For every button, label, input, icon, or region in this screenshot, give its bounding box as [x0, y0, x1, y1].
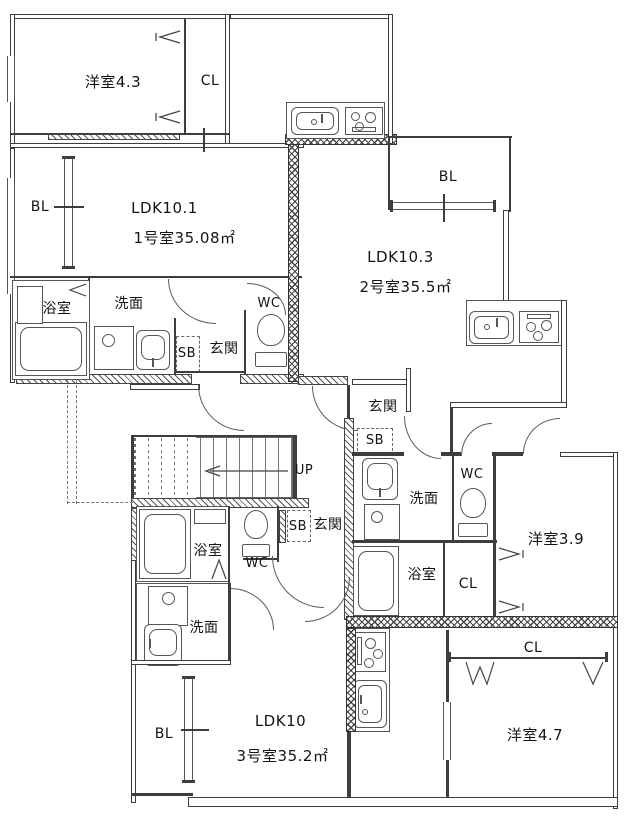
railing-cap [62, 156, 75, 159]
room-label-wc: WC [254, 296, 284, 312]
balcony-outline [509, 136, 511, 212]
room-label-closet: CL [454, 576, 482, 594]
room-label-entrance: 玄関 [196, 341, 252, 359]
bathtub-icon [15, 322, 87, 376]
room-label-western-3-9: 洋室3.9 [515, 530, 597, 549]
wall [131, 660, 231, 665]
wall [130, 384, 200, 390]
kitchen-sink-icon [291, 107, 339, 135]
hanger-pipe-icon [464, 660, 496, 686]
room-label-balcony: BL [148, 726, 180, 744]
room-label-bath: 浴室 [29, 301, 85, 319]
room-label-washroom: 洗面 [398, 491, 450, 509]
room-label-closet: CL [192, 73, 228, 91]
room-label-entrance: 玄関 [355, 399, 411, 417]
grid-tick [203, 128, 205, 152]
gas-stove-icon [345, 107, 383, 135]
wall [450, 408, 453, 456]
room-label-balcony: BL [25, 199, 55, 217]
wall [388, 14, 393, 144]
wall [10, 143, 304, 148]
roof-outline-dashed [67, 502, 133, 504]
stairs-up-label: UP [287, 463, 321, 479]
window-track [48, 134, 180, 140]
unit1-ldk-label: LDK10.1 [112, 199, 217, 218]
wall [352, 379, 408, 385]
unit3-room-info: 3号室35.2㎡ [210, 747, 355, 766]
wall [441, 452, 461, 456]
hatched-wall [288, 142, 299, 382]
window [7, 56, 15, 102]
bath-counter [194, 509, 226, 524]
door-arc [404, 416, 441, 459]
wall [184, 19, 186, 134]
unit1-room-info: 1号室35.08㎡ [112, 229, 257, 248]
room-label-western-4-3: 洋室4.3 [58, 73, 168, 92]
room-label-bath: 浴室 [396, 567, 448, 585]
room-label-bath: 浴室 [180, 543, 236, 561]
window [443, 702, 451, 760]
room-label-washroom: 洗面 [176, 620, 232, 638]
sliding-door-arrow-icon [62, 282, 88, 298]
railing-cap [182, 780, 195, 783]
toilet-icon [457, 486, 489, 538]
room-label-balcony: BL [433, 169, 463, 187]
sliding-door-arrow-icon [150, 28, 182, 46]
railing-cap [62, 266, 75, 269]
hatched-wall [346, 616, 618, 628]
gas-stove-icon [354, 632, 386, 672]
bathtub-icon [353, 546, 399, 616]
wall [452, 456, 454, 540]
hatched-wall [298, 376, 348, 385]
door-arc [230, 588, 274, 630]
hatched-wall [346, 628, 356, 732]
wall [347, 732, 351, 802]
sliding-door-arrow-icon [150, 108, 182, 126]
wall [560, 452, 618, 457]
room-label-entrance: 玄関 [306, 517, 350, 535]
wall [352, 540, 497, 543]
room-label-shoebox: SB [362, 433, 388, 449]
balcony-outline [131, 793, 193, 796]
washing-machine-icon [94, 326, 134, 370]
room-label-wc: WC [242, 556, 272, 572]
wall [613, 452, 618, 809]
hatched-wall [279, 510, 286, 543]
balcony-railing [64, 158, 73, 268]
wall [492, 452, 523, 456]
railing-cap [182, 676, 195, 679]
unit3-ldk-label: LDK10 [228, 712, 333, 731]
sliding-door-arrow-icon [497, 599, 527, 615]
room-label-wc: WC [458, 467, 486, 483]
toilet-icon [241, 508, 271, 558]
hanger-pipe-icon [580, 660, 606, 686]
up-arrow-icon [198, 464, 290, 478]
unit2-room-info: 2号室35.5㎡ [338, 278, 473, 297]
room-label-western-4-7: 洋室4.7 [492, 726, 578, 745]
wall [10, 276, 302, 278]
washing-machine-icon [364, 504, 400, 540]
kitchen-sink-icon [469, 311, 514, 344]
kitchen-sink-icon [353, 680, 387, 728]
closet-pole-end [448, 652, 451, 662]
railing-cap [390, 200, 393, 212]
railing-cap [493, 200, 496, 212]
wall [10, 14, 230, 19]
door-arc [198, 385, 244, 431]
toilet-icon [254, 312, 288, 368]
washbasin-icon [136, 330, 170, 370]
room-label-closet: CL [518, 640, 548, 658]
grid-tick [181, 729, 209, 731]
wall [503, 210, 509, 306]
door-arc [461, 423, 492, 456]
stairs-dashed-part [134, 437, 196, 498]
gas-stove-icon [519, 311, 559, 343]
roof-outline-dashed [67, 380, 77, 504]
wall [230, 14, 393, 19]
grid-tick [443, 194, 445, 222]
wall [561, 300, 567, 408]
wall [450, 402, 567, 408]
grid-tick [54, 206, 84, 208]
door-arc [523, 418, 560, 454]
washbasin-icon [362, 458, 398, 500]
balcony-outline [388, 136, 512, 138]
wall [493, 456, 496, 618]
floor-plan: 洋室4.3 CL BL LDK10.1 1号室35.08㎡ 浴室 洗面 SB 玄… [0, 0, 632, 824]
folding-door-icon [210, 558, 228, 580]
entrance-step-line [176, 371, 244, 373]
wall [188, 797, 618, 807]
unit2-ldk-label: LDK10.3 [348, 248, 453, 267]
room-label-washroom: 洗面 [101, 296, 157, 314]
wall [352, 452, 404, 456]
